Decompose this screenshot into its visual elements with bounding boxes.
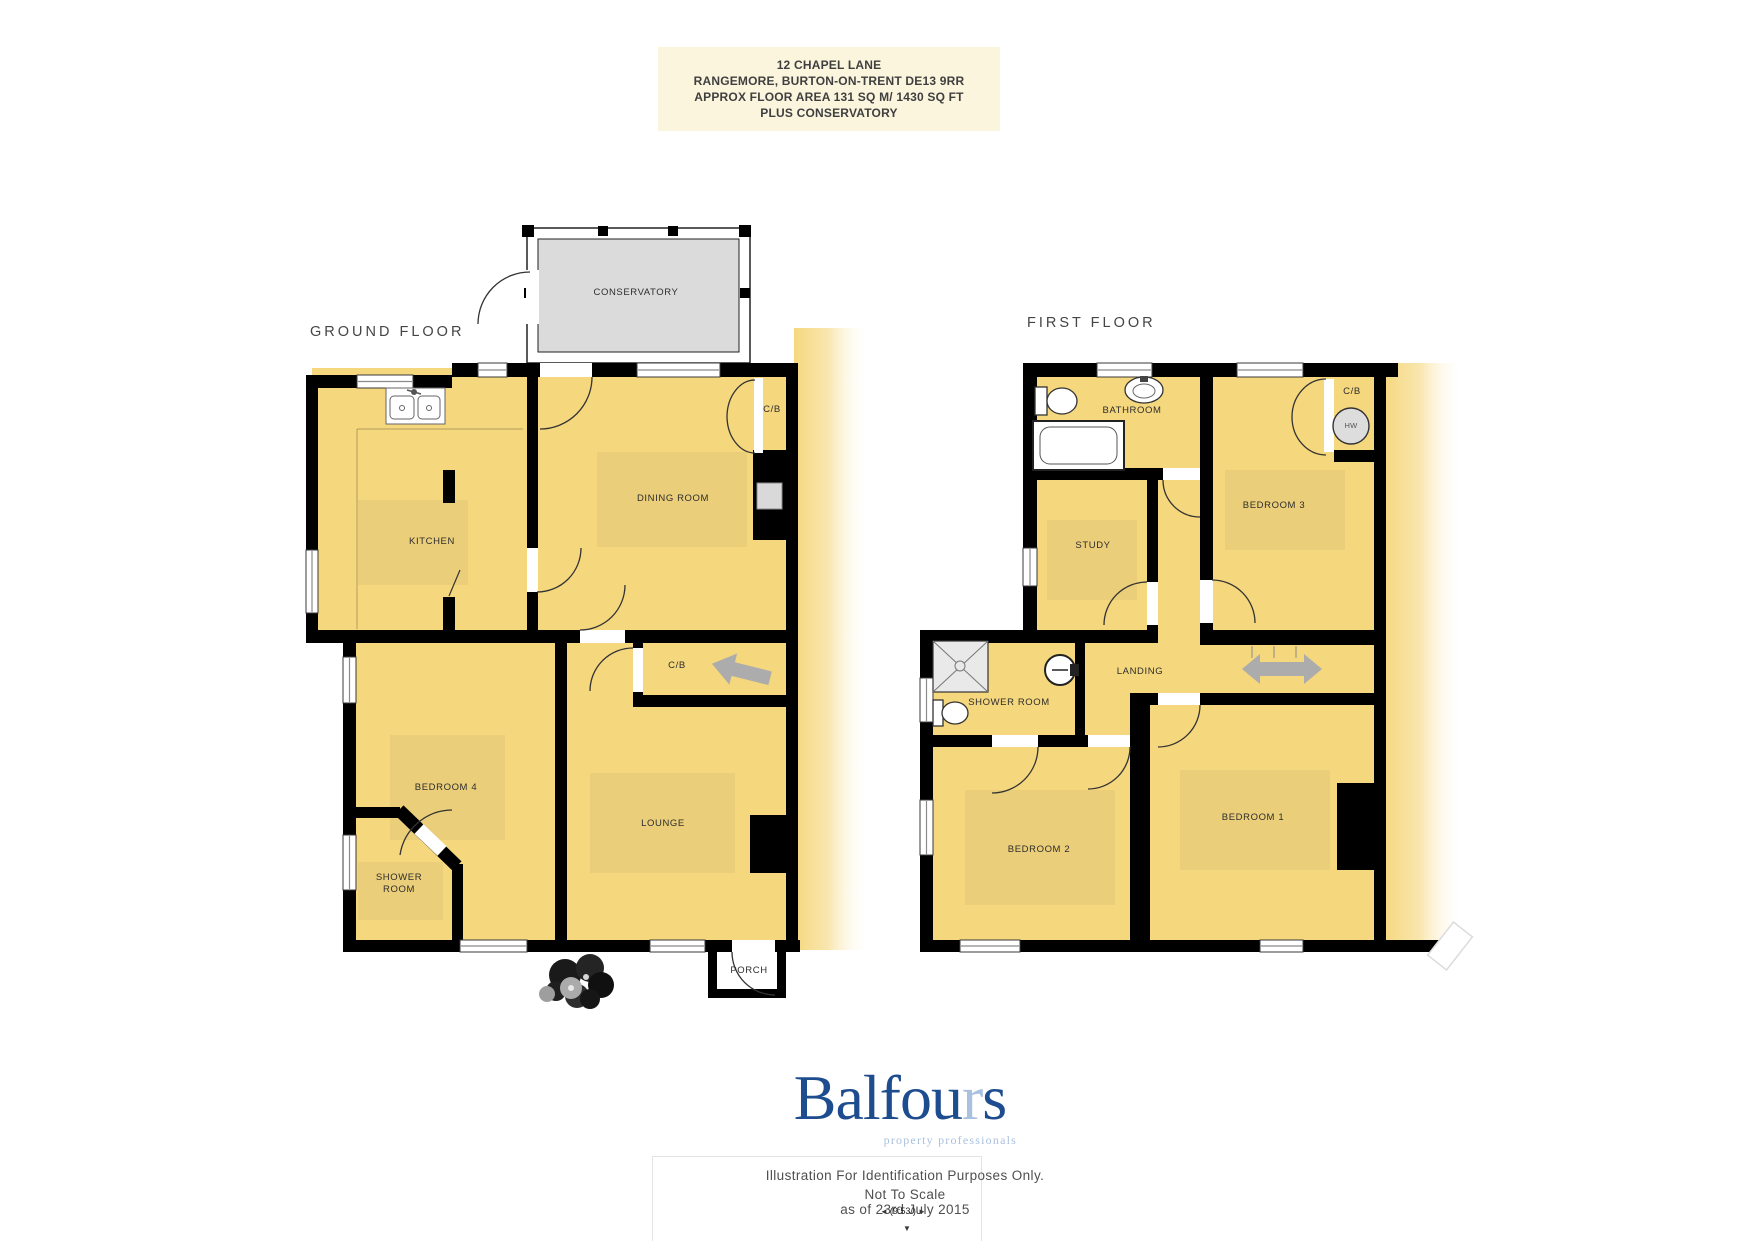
- room-label-landing: LANDING: [1117, 666, 1163, 678]
- room-label-lounge: LOUNGE: [641, 818, 685, 830]
- scrub-prev-icon[interactable]: ◄: [880, 1207, 888, 1216]
- hot-water-label: HW: [1344, 421, 1357, 430]
- room-label-bathroom: BATHROOM: [1103, 405, 1162, 417]
- property-title-block: 12 CHAPEL LANE RANGEMORE, BURTON-ON-TREN…: [658, 47, 1000, 131]
- title-line-town: RANGEMORE, BURTON-ON-TRENT DE13 9RR: [658, 73, 1000, 89]
- room-label-shower-room-gf: SHOWER ROOM: [376, 872, 422, 896]
- shower-room-gf-line1: SHOWER: [376, 872, 422, 884]
- room-label-cb-ff: C/B: [1343, 386, 1361, 398]
- scrub-time-label: (9:53/): [890, 1206, 916, 1216]
- room-label-bedroom3: BEDROOM 3: [1243, 500, 1305, 512]
- room-label-cb-dining: C/B: [763, 404, 781, 416]
- room-label-bedroom2: BEDROOM 2: [1008, 844, 1070, 856]
- logo-text-dark-end: s: [982, 1062, 1006, 1133]
- floorplan-graphics: [0, 0, 1755, 1241]
- logo-text-dark: Balfou: [794, 1062, 962, 1133]
- room-label-conservatory: CONSERVATORY: [594, 287, 679, 299]
- title-line-extra: PLUS CONSERVATORY: [658, 105, 1000, 121]
- room-label-kitchen: KITCHEN: [409, 536, 455, 548]
- floorplan-page: 12 CHAPEL LANE RANGEMORE, BURTON-ON-TREN…: [0, 0, 1755, 1241]
- room-label-cb-hall: C/B: [668, 660, 686, 672]
- ground-floor-title: GROUND FLOOR: [310, 324, 464, 340]
- room-label-bedroom1: BEDROOM 1: [1222, 812, 1284, 824]
- viewer-scrubber: ◄ (9:53/) ►: [880, 1206, 926, 1216]
- shower-room-gf-line2: ROOM: [376, 884, 422, 896]
- title-line-area: APPROX FLOOR AREA 131 SQ M/ 1430 SQ FT: [658, 89, 1000, 105]
- scrub-next-icon[interactable]: ►: [918, 1207, 926, 1216]
- room-label-shower-room-ff: SHOWER ROOM: [968, 697, 1050, 709]
- room-label-dining-room: DINING ROOM: [637, 493, 709, 505]
- scrub-down-icon[interactable]: ▼: [903, 1224, 911, 1233]
- room-label-porch: PORCH: [730, 965, 767, 977]
- room-label-bedroom4: BEDROOM 4: [415, 782, 477, 794]
- room-label-study: STUDY: [1075, 540, 1110, 552]
- logo-tagline: property professionals: [884, 1133, 1017, 1148]
- balfours-logo: Balfours: [794, 1066, 1006, 1130]
- title-line-address: 12 CHAPEL LANE: [658, 57, 1000, 73]
- logo-text-light: r: [962, 1062, 982, 1133]
- first-floor-title: FIRST FLOOR: [1027, 315, 1156, 331]
- disclaimer-line2: Not To Scale: [864, 1187, 945, 1202]
- disclaimer-line1: Illustration For Identification Purposes…: [766, 1168, 1045, 1183]
